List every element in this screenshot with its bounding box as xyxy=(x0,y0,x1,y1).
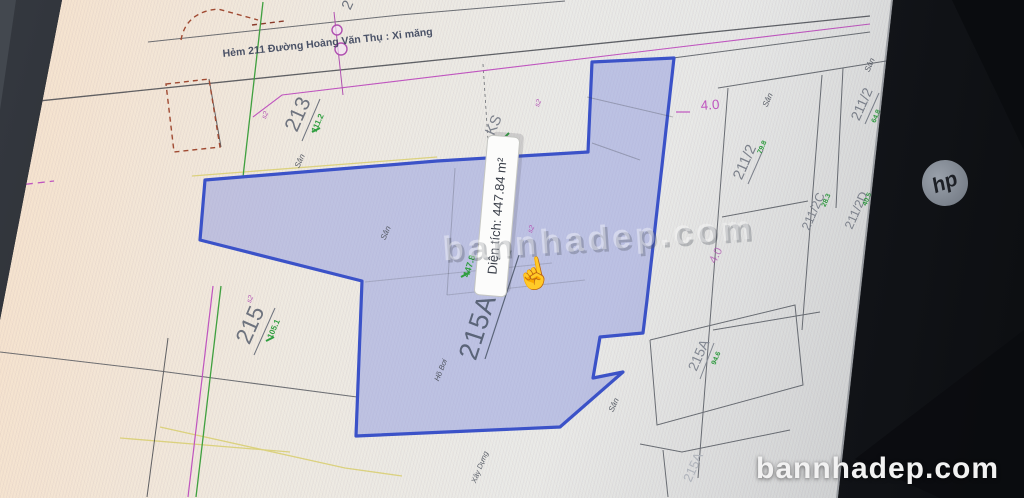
photo-of-monitor: Hẻm 211 Đường Hoàng Văn Thụ : Xi măng 2 … xyxy=(0,0,1024,498)
hp-logo-text: hp xyxy=(929,167,962,199)
corner-watermark: bannhadep.com xyxy=(756,452,999,486)
